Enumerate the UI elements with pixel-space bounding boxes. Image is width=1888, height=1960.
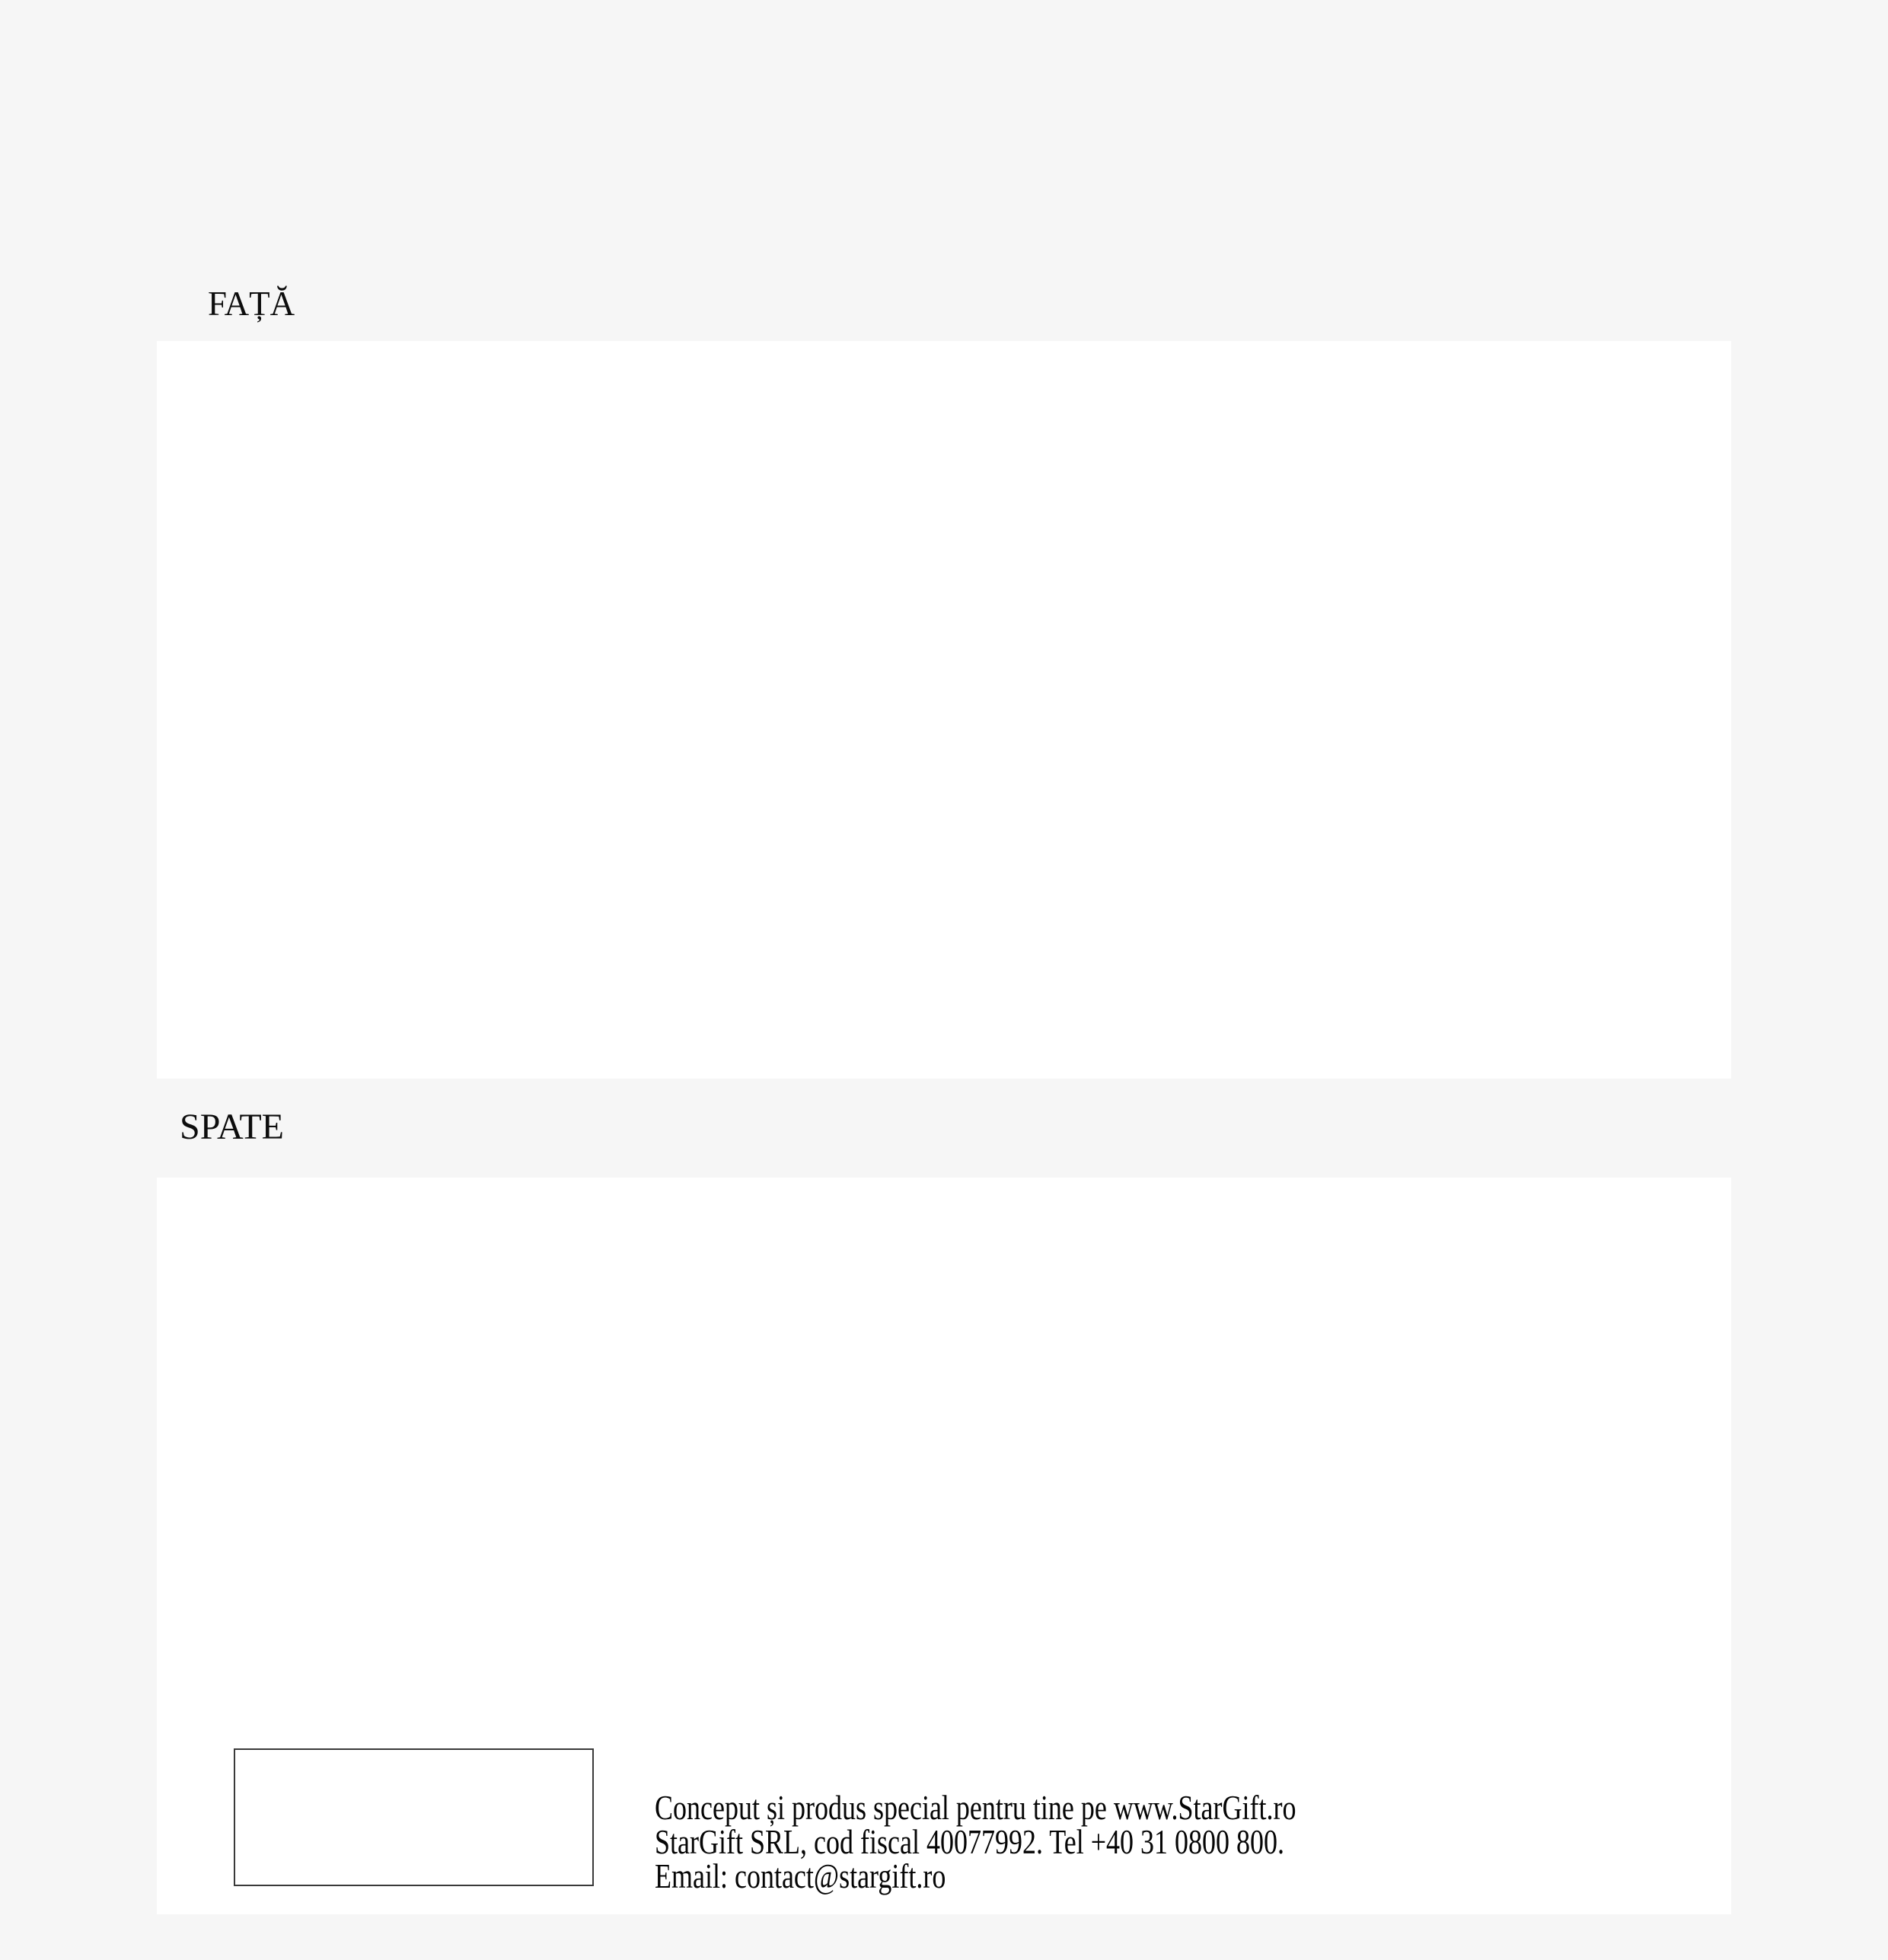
front-card-canvas [157,341,1731,1079]
front-section-label: FAȚĂ [208,287,295,321]
footer-line-website: Conceput și produs special pentru tine p… [655,1791,1296,1825]
footer-line-company: StarGift SRL, cod fiscal 40077992. Tel +… [655,1825,1296,1860]
footer-contact-info: Conceput și produs special pentru tine p… [655,1791,1296,1894]
footer-line-email: Email: contact@stargift.ro [655,1860,1296,1894]
back-section-label: SPATE [180,1109,284,1146]
print-preview-page: FAȚĂ SPATE Conceput și produs special pe… [0,0,1888,1960]
back-card-canvas: Conceput și produs special pentru tine p… [157,1178,1731,1914]
logo-placeholder-box [234,1748,594,1886]
